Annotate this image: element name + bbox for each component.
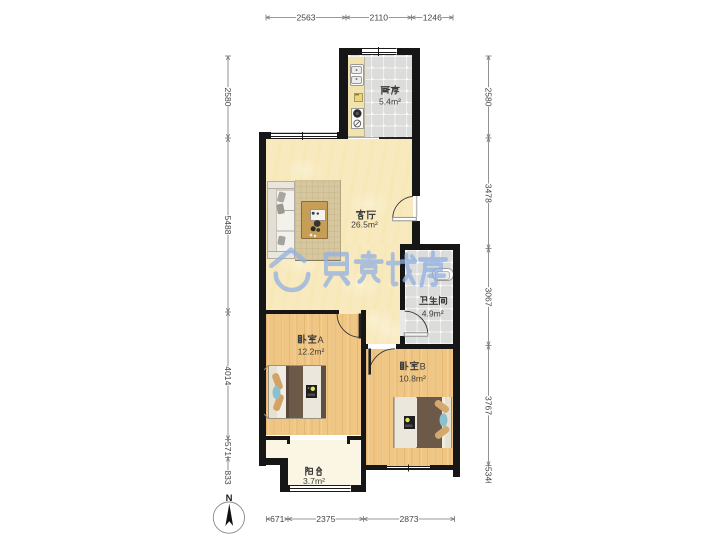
svg-text:26.5m²: 26.5m² (351, 220, 378, 230)
svg-text:5488: 5488 (223, 215, 233, 234)
svg-text:2110: 2110 (370, 13, 389, 23)
svg-text:N: N (226, 493, 233, 504)
svg-text:3.7m²: 3.7m² (303, 476, 325, 486)
svg-text:B: B (420, 362, 426, 372)
svg-text:2563: 2563 (296, 13, 315, 23)
svg-text:5.4m²: 5.4m² (379, 96, 401, 106)
svg-text:571: 571 (223, 442, 233, 457)
svg-text:3767: 3767 (484, 396, 494, 415)
svg-text:2375: 2375 (316, 514, 335, 524)
svg-text:10.8m²: 10.8m² (399, 373, 426, 383)
svg-text:4.9m²: 4.9m² (422, 308, 444, 318)
svg-text:833: 833 (223, 470, 233, 485)
svg-text:12.2m²: 12.2m² (298, 347, 325, 357)
svg-text:671: 671 (270, 514, 285, 524)
svg-text:2873: 2873 (399, 514, 418, 524)
svg-text:2580: 2580 (484, 87, 494, 106)
svg-text:1246: 1246 (423, 13, 442, 23)
svg-text:534: 534 (484, 467, 494, 482)
svg-text:2580: 2580 (223, 87, 233, 106)
svg-text:A: A (318, 335, 325, 345)
svg-text:3067: 3067 (484, 287, 494, 306)
svg-text:3478: 3478 (484, 184, 494, 203)
svg-text:4014: 4014 (223, 366, 233, 385)
